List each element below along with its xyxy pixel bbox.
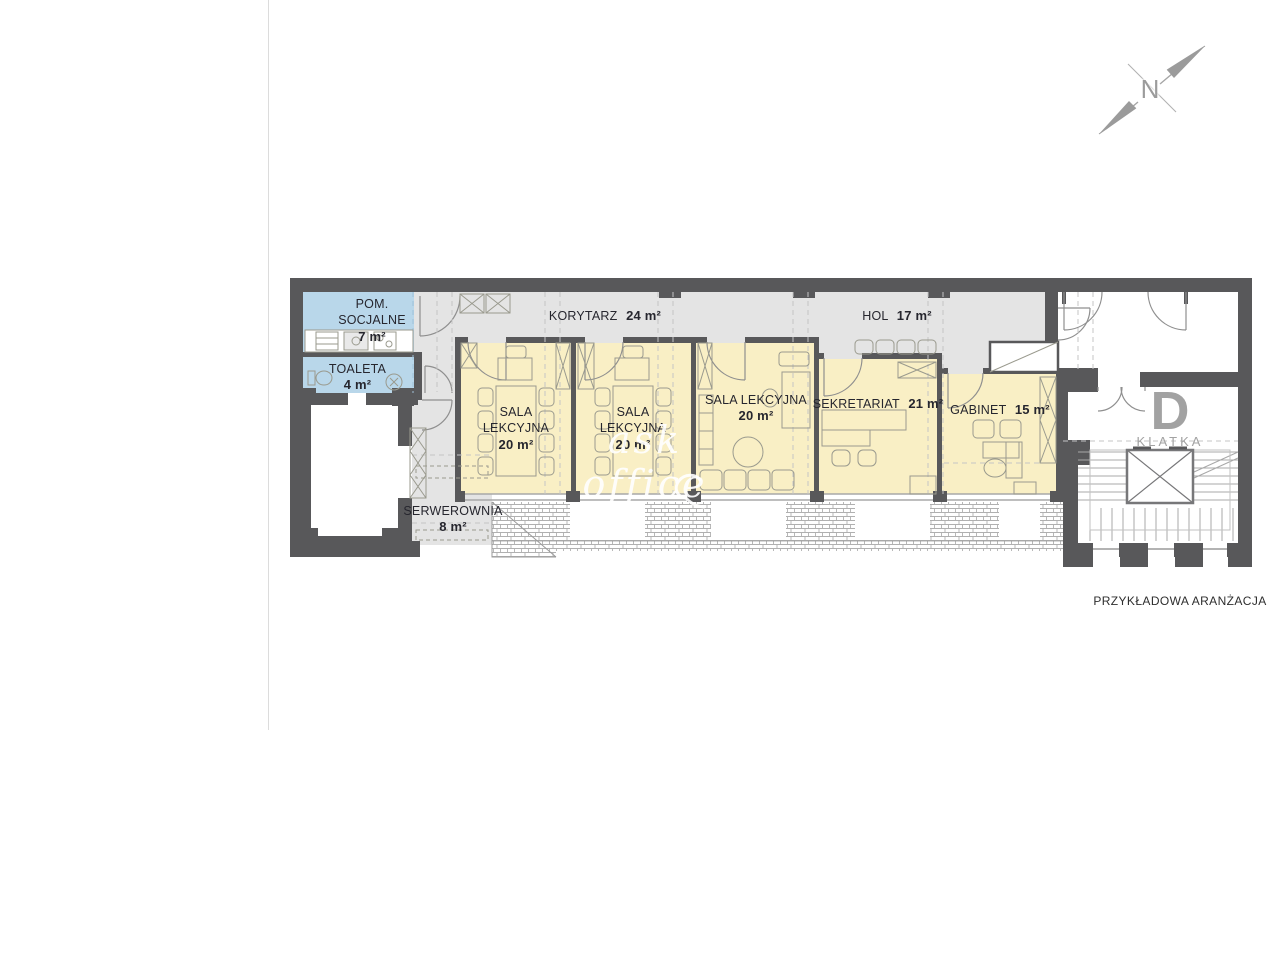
landing-floor [1058, 292, 1238, 372]
floor-plan-drawing [0, 0, 1280, 960]
floor-plan-page: POM. SOCJALNE 7 m² TOALETA 4 m² KORYTARZ… [0, 0, 1280, 960]
plan-caption: PRZYKŁADOWA ARANŻACJA [1090, 594, 1270, 608]
room-label-hol: HOL 17 m² [832, 308, 962, 325]
north-label: N [1136, 74, 1164, 105]
room-area: 17 m² [897, 308, 932, 323]
wall-pom-toaleta [303, 352, 415, 357]
room-name: KORYTARZ [549, 309, 618, 323]
room-label-sala-3: SALA LEKCYJNA 20 m² [700, 392, 812, 425]
sekretariat-floor [819, 359, 937, 494]
room-area: 20 m² [593, 437, 673, 454]
staircase-label: KLATKA [1130, 434, 1210, 449]
wall-west [290, 278, 303, 557]
room-area: 15 m² [1015, 402, 1050, 417]
room-label-serwerownia: SERWEROWNIA 8 m² [402, 503, 504, 536]
room-label-pom-socjalne: POM. SOCJALNE 7 m² [336, 296, 408, 345]
room-area: 24 m² [626, 308, 661, 323]
wall-shaft-west [303, 395, 311, 547]
room-label-sala-1: SALA LEKCYJNA 20 m² [476, 404, 556, 453]
room-area: 8 m² [402, 519, 504, 536]
room-name: HOL [862, 309, 888, 323]
wall-east [1238, 278, 1252, 557]
room-label-toaleta: TOALETA 4 m² [310, 361, 405, 394]
staircase-letter: D [1130, 384, 1210, 438]
room-label-korytarz: KORYTARZ 24 m² [520, 308, 690, 325]
room-area: 21 m² [908, 396, 943, 411]
room-name: GABINET [950, 403, 1006, 417]
room-name: POM. SOCJALNE [338, 297, 406, 327]
room-name: SEKRETARIAT [813, 397, 900, 411]
room-label-gabinet: GABINET 15 m² [940, 402, 1060, 419]
room-name: TOALETA [329, 362, 386, 376]
room-name: SERWEROWNIA [403, 504, 502, 518]
elevator-shaft [1127, 448, 1193, 503]
wall-hol-landing [1045, 292, 1058, 345]
wall-blue-east [414, 352, 422, 400]
room-area: 7 m² [336, 329, 408, 346]
room-area: 20 m² [476, 437, 556, 454]
wall-north [290, 278, 1252, 292]
room-name: SALA LEKCYJNA [483, 405, 549, 435]
room-area: 20 m² [700, 408, 812, 425]
room-label-sala-2: SALA LEKCYJNA 20 m² [593, 404, 673, 453]
terrace-hatch [492, 500, 1067, 557]
room-label-sekretariat: SEKRETARIAT 21 m² [808, 396, 948, 413]
staircase [1078, 448, 1238, 541]
room-name: SALA LEKCYJNA [600, 405, 666, 435]
room-area: 4 m² [310, 377, 405, 394]
room-name: SALA LEKCYJNA [705, 393, 807, 407]
wall-sala1-west [455, 337, 461, 497]
